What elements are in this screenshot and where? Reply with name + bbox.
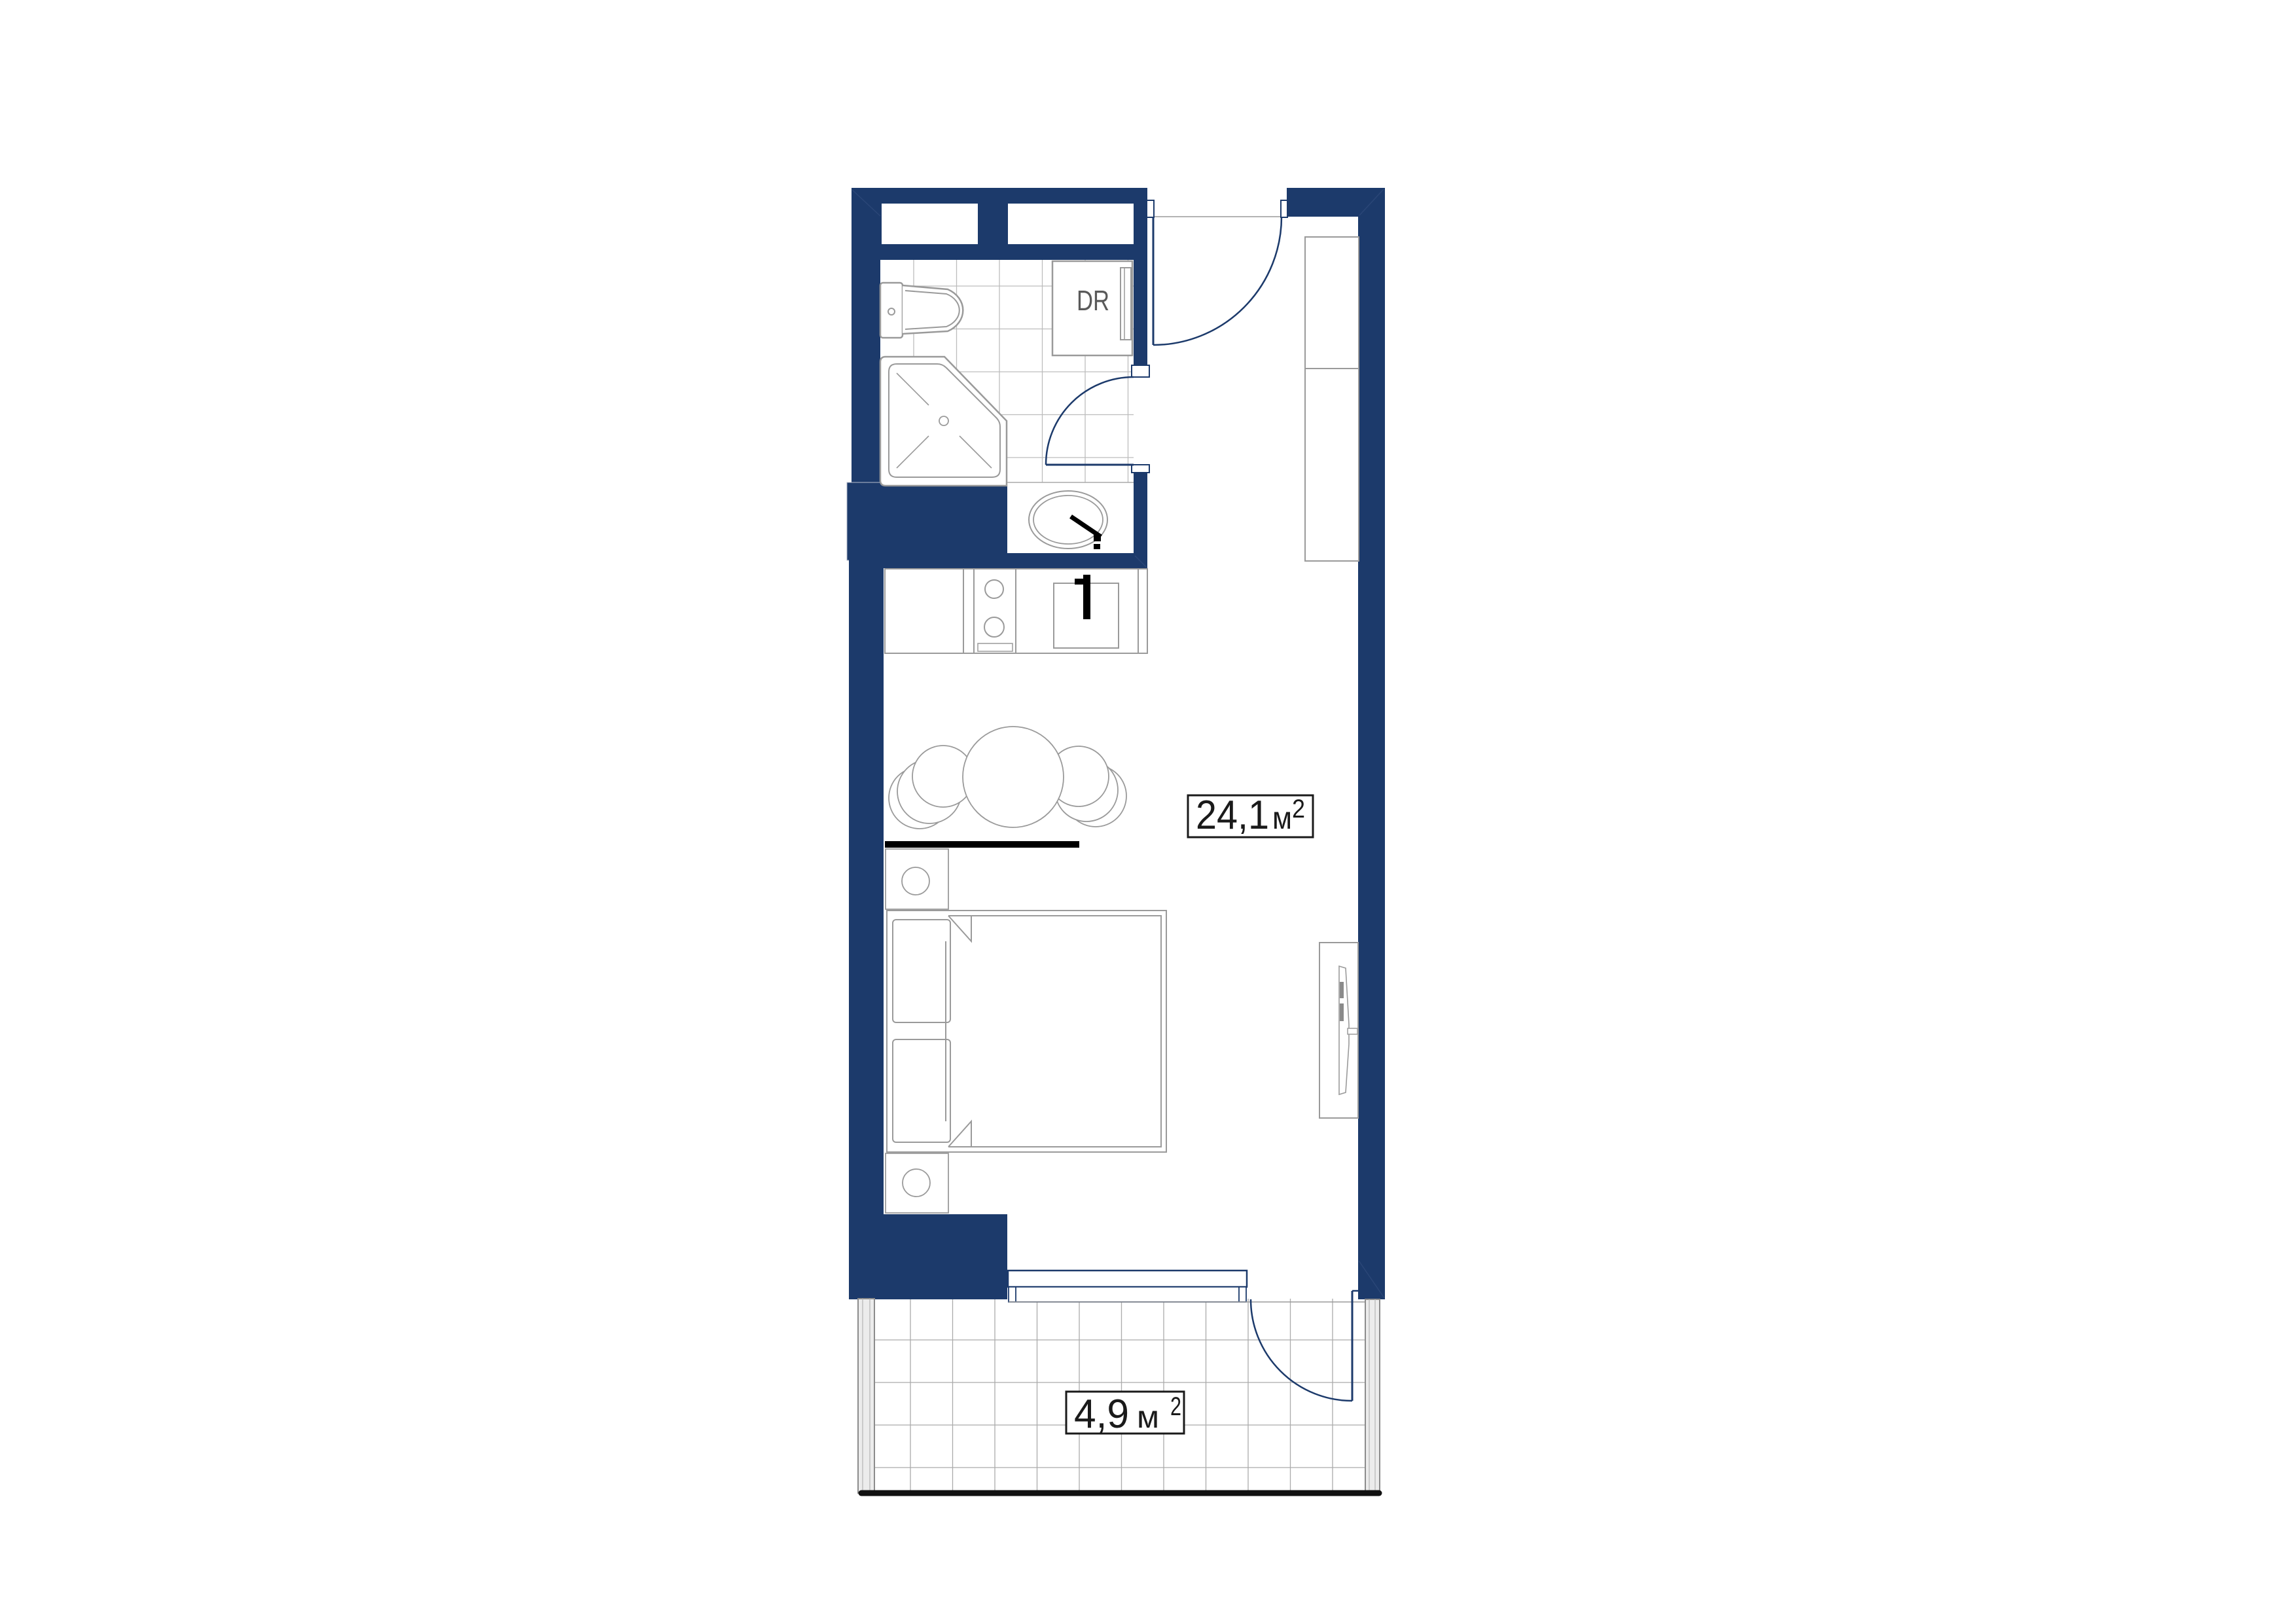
svg-text:м: м <box>1272 801 1292 836</box>
svg-text:2: 2 <box>1170 1392 1181 1421</box>
svg-text:24,1: 24,1 <box>1196 793 1269 838</box>
svg-text:м: м <box>1137 1400 1159 1435</box>
svg-text:4,9: 4,9 <box>1074 1392 1129 1437</box>
svg-text:2: 2 <box>1292 795 1305 823</box>
svg-text:DR: DR <box>1077 285 1109 317</box>
